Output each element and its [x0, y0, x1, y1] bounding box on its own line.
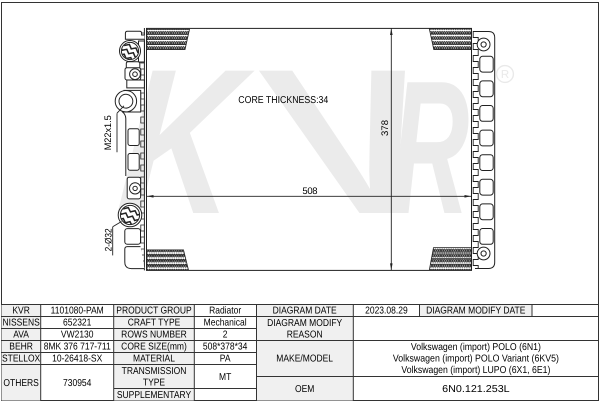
svg-text:DIAGRAM DATE: DIAGRAM DATE [273, 306, 337, 317]
svg-text:MT: MT [219, 372, 231, 383]
svg-text:2: 2 [223, 330, 228, 341]
svg-text:1101080-PAM: 1101080-PAM [51, 306, 104, 317]
svg-text:730954: 730954 [63, 378, 92, 389]
svg-text:OEM: OEM [295, 384, 314, 395]
svg-text:378: 378 [380, 120, 391, 136]
svg-text:Volkswagen (import) LUPO (6X1,: Volkswagen (import) LUPO (6X1, 6E1) [401, 365, 550, 376]
svg-text:DIAGRAM MODIFY: DIAGRAM MODIFY [267, 318, 342, 329]
svg-text:PRODUCT GROUP: PRODUCT GROUP [116, 306, 192, 317]
svg-text:PA: PA [220, 354, 231, 365]
svg-text:M22x1.5: M22x1.5 [103, 115, 114, 150]
svg-text:508: 508 [302, 186, 317, 197]
svg-text:STELLOX: STELLOX [2, 354, 41, 365]
svg-text:BEHR: BEHR [9, 342, 33, 353]
svg-text:Volkswagen (import) POLO Varia: Volkswagen (import) POLO Variant (6KV5) [393, 353, 559, 364]
svg-text:R: R [391, 42, 469, 254]
svg-text:R: R [501, 69, 509, 81]
svg-text:KVR: KVR [12, 306, 29, 317]
svg-text:TYPE: TYPE [143, 378, 165, 389]
svg-text:6N0.121.253L: 6N0.121.253L [442, 384, 510, 395]
svg-text:ROWS NUMBER: ROWS NUMBER [121, 330, 187, 341]
svg-text:VW2130: VW2130 [61, 330, 94, 341]
svg-text:CORE SIZE(mm): CORE SIZE(mm) [121, 342, 187, 353]
svg-text:MATERIAL: MATERIAL [133, 354, 175, 365]
svg-text:REASON: REASON [287, 329, 323, 340]
svg-text:2023.08.29: 2023.08.29 [365, 306, 408, 317]
svg-text:652321: 652321 [63, 318, 92, 329]
svg-text:10-26418-SX: 10-26418-SX [52, 354, 102, 365]
svg-text:SUPPLEMENTARY: SUPPLEMENTARY [117, 390, 192, 401]
svg-text:8MK 376 717-711: 8MK 376 717-711 [44, 342, 111, 353]
svg-text:Volkswagen (import) POLO (6N1): Volkswagen (import) POLO (6N1) [411, 342, 541, 353]
svg-text:DIAGRAM MODIFY DATE: DIAGRAM MODIFY DATE [426, 306, 526, 317]
svg-text:508*378*34: 508*378*34 [203, 342, 248, 353]
svg-text:Radiator: Radiator [209, 306, 242, 317]
svg-text:Mechanical: Mechanical [204, 318, 247, 329]
svg-text:OTHERS: OTHERS [3, 378, 39, 389]
svg-text:CORE THICKNESS:34: CORE THICKNESS:34 [238, 95, 328, 106]
svg-text:AVA: AVA [13, 330, 29, 341]
svg-text:MAKE/MODEL: MAKE/MODEL [276, 354, 333, 365]
svg-text:NISSENS: NISSENS [2, 318, 40, 329]
svg-text:2-Ø32: 2-Ø32 [103, 228, 114, 251]
svg-text:CRAFT TYPE: CRAFT TYPE [128, 318, 181, 329]
svg-text:TRANSMISSION: TRANSMISSION [122, 366, 187, 377]
